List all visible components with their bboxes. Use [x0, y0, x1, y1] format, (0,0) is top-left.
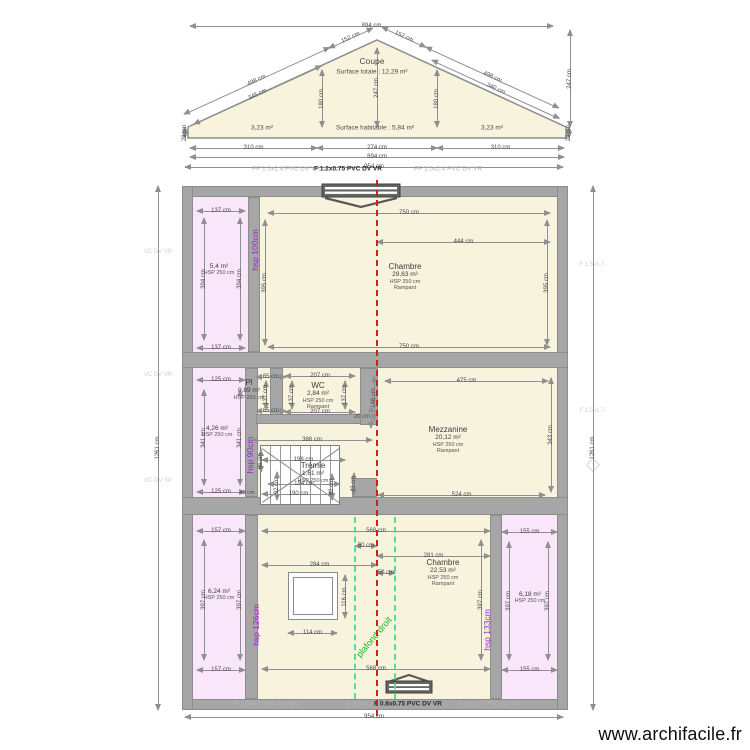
- dimension-label: 475 cm: [457, 378, 477, 384]
- dimension-label: 28 cm: [566, 124, 572, 140]
- text-label: hsp 126cm: [251, 604, 261, 646]
- dimension-label: 157 cm: [211, 528, 231, 534]
- dimension-label: 394 cm: [237, 269, 243, 289]
- dimension-label: 247 cm: [567, 69, 573, 89]
- dimension-label: 750 cm: [399, 344, 419, 350]
- room-label: WC2,84 m²HSP 250 cmRampant: [303, 381, 334, 410]
- dimension-label: 125 cm: [211, 489, 231, 495]
- dimension-label: 397 cm: [478, 590, 484, 610]
- text-label: PF 1.5x2.4 PVC DV VR: [414, 166, 482, 173]
- text-label: 3,23 m²: [481, 125, 503, 132]
- floor-plan-canvas: www.archifacile.fr 894 cm310 cm274 cm310…: [0, 0, 750, 750]
- dimension-label: 397 cm: [545, 591, 551, 611]
- dimension-label: 1261 cm: [155, 436, 161, 459]
- text-label: F 1.5x1.7: [579, 262, 604, 268]
- text-label: hsp 133cm: [482, 609, 492, 651]
- dimension-label: 397 cm: [506, 591, 512, 611]
- text-label: VC DV VR: [144, 372, 172, 378]
- axis-line-red: [376, 180, 378, 716]
- dimension-label: 155 cm: [520, 529, 540, 535]
- bottom-window-icon: [386, 675, 432, 693]
- dimension-label: 284 cm: [310, 562, 330, 568]
- dimension-label: 343 cm: [548, 425, 554, 445]
- ceiling-limit-line: [394, 517, 396, 699]
- dimension-label: 114 cm: [303, 630, 322, 636]
- dimension-label: 82 cm: [329, 479, 335, 495]
- dimension-label: 50 cm: [378, 570, 394, 576]
- dimension-label: 397 cm: [237, 590, 243, 610]
- dimension-label: 65 cm: [263, 374, 279, 380]
- text-label: Surface totale : 12,29 m²: [336, 69, 407, 76]
- dimension-label: 20 cm: [354, 414, 370, 420]
- dimension-label: 341 cm: [237, 428, 243, 448]
- text-label: 3,23 m²: [251, 125, 273, 132]
- dimension-label: 310 cm: [244, 145, 264, 151]
- room-label: Pl0,89 m²HSP 250 cm: [234, 378, 265, 401]
- dimension-label: 1261 cm: [590, 436, 596, 459]
- dimension-label: 180 cm: [434, 89, 440, 109]
- roof-window: [288, 572, 338, 620]
- top-window-icon: [322, 184, 400, 207]
- dimension-label: 386 cm: [302, 437, 322, 443]
- room-label: 6,24 m²HSP 250 cm: [204, 588, 235, 602]
- dimension-label: 395 cm: [544, 273, 550, 293]
- room-label: 5,4 m²HSP 250 cm: [204, 263, 235, 277]
- dimension-label: 137 cm: [211, 208, 231, 214]
- dimension-label: 190 cm: [289, 491, 309, 497]
- room-label: Mezzanine20,12 m²HSP 250 cmRampant: [429, 425, 468, 454]
- dimension-label: 274 cm: [367, 145, 387, 151]
- dimension-label: 894 cm: [367, 154, 387, 160]
- dimension-label: 247 cm: [374, 78, 380, 98]
- text-label: F 0.8x0.75 PVC DV VR: [374, 701, 442, 708]
- text-label: F 1.5x1.7: [579, 408, 604, 414]
- watermark: www.archifacile.fr: [598, 724, 742, 745]
- dimension-label: 137 cm: [211, 345, 231, 351]
- room-label: Chambre29,63 m²HSP 250 cmRampant: [389, 262, 422, 291]
- room-label: Chambre22,53 m²HSP 250 cmRampant: [427, 558, 460, 587]
- dimension-label: 66 cm: [258, 453, 264, 469]
- dimension-label: 50 cm: [358, 543, 374, 549]
- text-label: hsp 100cm: [250, 229, 260, 271]
- text-label: PF 1.5x2.4 PVC DV VR: [252, 166, 320, 173]
- dimension-label: 155 cm: [520, 667, 540, 673]
- dimension-label: 207 cm: [310, 373, 330, 379]
- dimension-label: 92 cm: [274, 478, 280, 494]
- dimension-label: 310 cm: [491, 145, 511, 151]
- text-label: Coupe: [359, 56, 384, 66]
- dimension-label: 157 cm: [211, 667, 231, 673]
- dimension-label: 524 cm: [452, 492, 472, 498]
- text-label: F 1.2x0.75 PVC DV VR: [314, 166, 382, 173]
- text-label: F 1.5x1.7 PVC DV VR: [234, 701, 298, 708]
- room-label: 4,26 m²HSP 250 cm: [202, 425, 233, 439]
- dimension-label: 137 cm: [289, 385, 295, 405]
- dimension-label: 395 cm: [262, 273, 268, 293]
- dimension-label: 125 cm: [211, 377, 231, 383]
- text-label: Surface habitable : 5,84 m²: [336, 125, 414, 132]
- text-label: hsp 90cm: [245, 437, 255, 474]
- text-label: VC DV SP: [144, 478, 172, 484]
- text-label: 40 cm: [240, 490, 255, 496]
- dimension-label: 954 cm: [364, 714, 384, 720]
- text-label: VC DV VR: [144, 249, 172, 255]
- dimension-label: 444 cm: [454, 239, 474, 245]
- room-label: Trémie1,61 m²HSP 250 cm: [298, 461, 329, 484]
- room-label: 6,18 m²HSP 250 cm: [515, 591, 546, 605]
- dimension-label: 137 cm: [342, 385, 348, 405]
- dimension-label: 750 cm: [399, 210, 419, 216]
- dimension-label: 28 cm: [182, 124, 188, 140]
- dimension-label: 43 cm: [351, 476, 357, 492]
- dimension-label: 180 cm: [319, 89, 325, 109]
- dimension-label: 116 cm: [342, 587, 348, 606]
- text-label: F 1.5x1.7 PVC DV VR: [457, 701, 521, 708]
- ceiling-limit-line: [354, 517, 356, 699]
